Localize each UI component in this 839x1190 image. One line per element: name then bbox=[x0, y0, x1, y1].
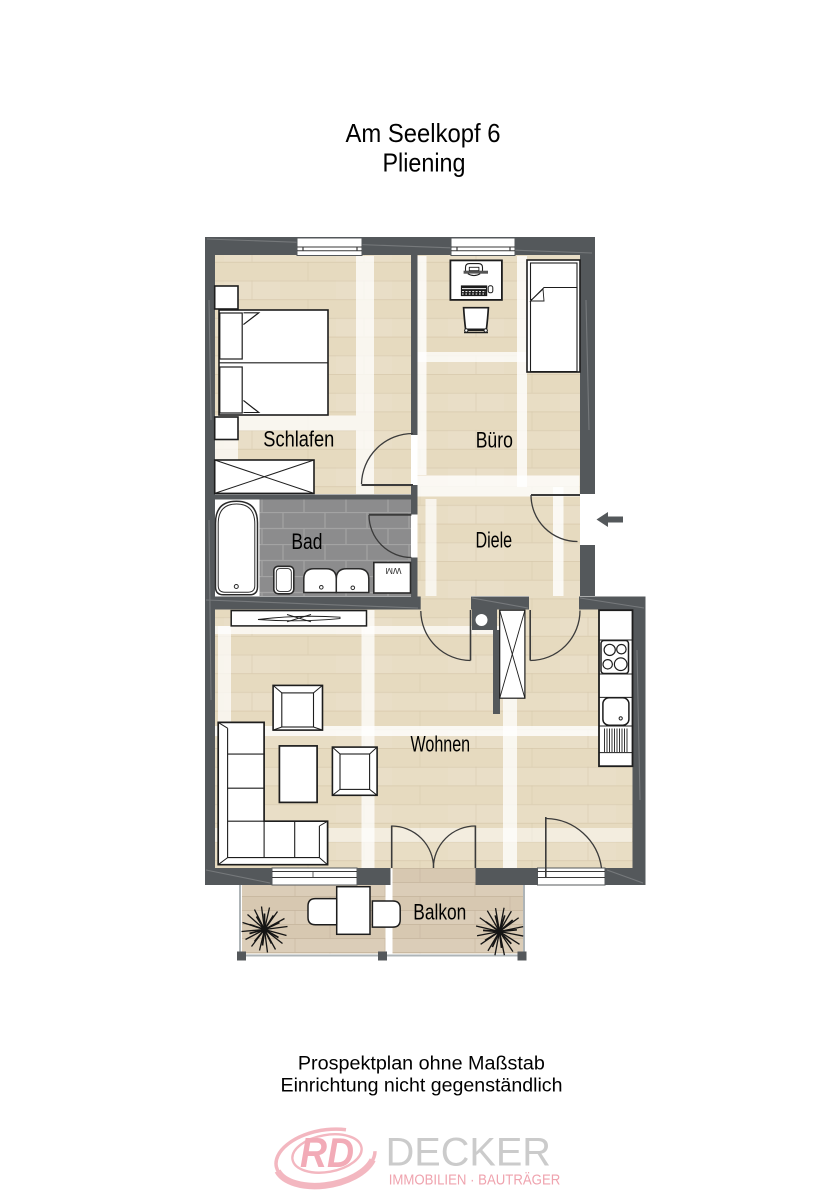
svg-text:IMMOBILIEN · BAUTRÄGER: IMMOBILIEN · BAUTRÄGER bbox=[389, 1172, 561, 1189]
svg-text:RD: RD bbox=[300, 1129, 354, 1176]
svg-text:Prospektplan ohne Maßstab: Prospektplan ohne Maßstab bbox=[298, 1053, 545, 1075]
svg-text:Einrichtung nicht gegenständli: Einrichtung nicht gegenständlich bbox=[281, 1075, 563, 1097]
svg-text:Balkon: Balkon bbox=[413, 900, 466, 925]
svg-text:Diele: Diele bbox=[475, 528, 512, 553]
svg-text:DECKER: DECKER bbox=[386, 1130, 551, 1174]
svg-text:Bad: Bad bbox=[291, 529, 322, 554]
svg-text:Wohnen: Wohnen bbox=[411, 732, 471, 757]
svg-text:Schlafen: Schlafen bbox=[263, 426, 334, 451]
svg-text:Am Seelkopf 6: Am Seelkopf 6 bbox=[346, 118, 501, 148]
svg-text:WM: WM bbox=[386, 566, 402, 576]
svg-text:Büro: Büro bbox=[476, 428, 513, 453]
svg-text:Pliening: Pliening bbox=[383, 147, 466, 177]
